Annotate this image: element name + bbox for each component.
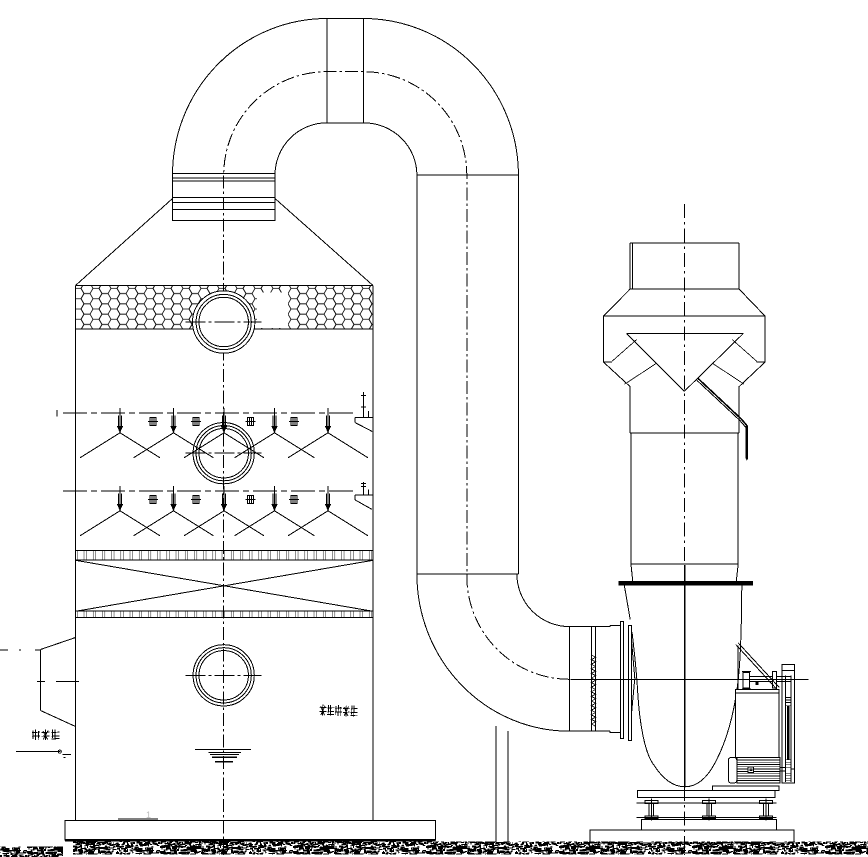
- svg-text:1: 1: [146, 810, 151, 820]
